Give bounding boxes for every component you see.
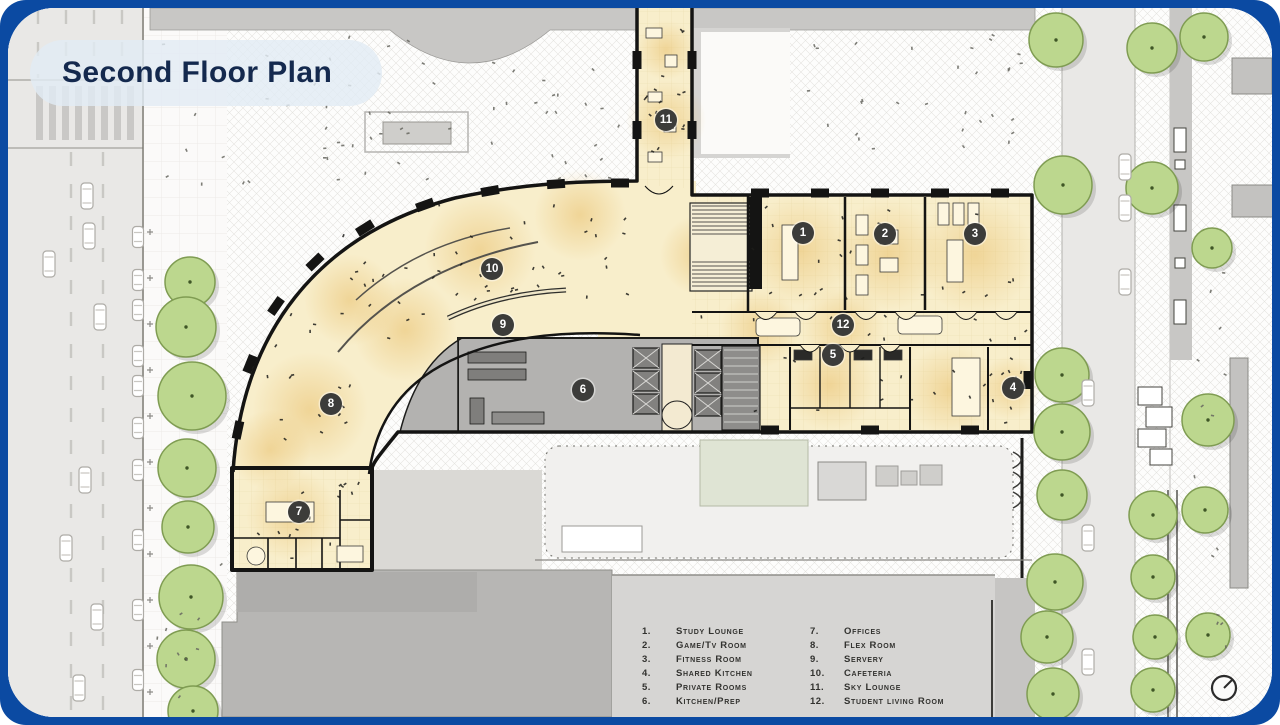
plan-canvas: Second Floor Plan 1 2 3 4 5 6 7 8 9 10 1… — [8, 8, 1272, 717]
site-plan — [8, 8, 1272, 717]
room-marker-10: 10 — [481, 258, 503, 280]
floor-plan-page: Second Floor Plan 1 2 3 4 5 6 7 8 9 10 1… — [0, 0, 1280, 725]
legend-item: 8.Flex Room — [810, 640, 1014, 652]
legend-item: 10.Cafeteria — [810, 668, 1014, 680]
room-marker-4: 4 — [1002, 377, 1024, 399]
page-title: Second Floor Plan — [62, 56, 332, 90]
room-marker-1: 1 — [792, 222, 814, 244]
legend-item-label: Sky Lounge — [844, 682, 1014, 694]
room-marker-6: 6 — [572, 379, 594, 401]
legend-item-label: Flex Room — [844, 640, 1014, 652]
legend-item-label: Servery — [844, 654, 1014, 666]
legend-item-label: Private Rooms — [676, 682, 800, 694]
legend-item-number: 1. — [642, 626, 676, 638]
room-marker-12: 12 — [832, 314, 854, 336]
legend-item: 4.Shared Kitchen — [642, 668, 800, 680]
legend-item: 1.Study Lounge — [642, 626, 800, 638]
legend: 1.Study Lounge 2.Game/Tv Room 3.Fitness … — [642, 626, 1014, 708]
legend-item: 9.Servery — [810, 654, 1014, 666]
legend-item-label: Study Lounge — [676, 626, 800, 638]
room-marker-9: 9 — [492, 314, 514, 336]
legend-item: 12.Student living Room — [810, 696, 1014, 708]
legend-item-number: 8. — [810, 640, 844, 652]
plan-title-pill: Second Floor Plan — [30, 40, 382, 106]
legend-item-number: 2. — [642, 640, 676, 652]
legend-item-number: 10. — [810, 668, 844, 680]
legend-item-number: 7. — [810, 626, 844, 638]
legend-item-label: Fitness Room — [676, 654, 800, 666]
room-marker-11: 11 — [655, 109, 677, 131]
legend-item-number: 12. — [810, 696, 844, 708]
legend-item-number: 3. — [642, 654, 676, 666]
legend-item-label: Shared Kitchen — [676, 668, 800, 680]
legend-item-number: 6. — [642, 696, 676, 708]
legend-item: 2.Game/Tv Room — [642, 640, 800, 652]
legend-item-label: Offices — [844, 626, 1014, 638]
room-marker-5: 5 — [822, 344, 844, 366]
legend-item: 3.Fitness Room — [642, 654, 800, 666]
legend-column-1: 1.Study Lounge 2.Game/Tv Room 3.Fitness … — [642, 626, 800, 708]
legend-item-label: Student living Room — [844, 696, 1014, 708]
legend-column-2: 7.Offices 8.Flex Room 9.Servery 10.Cafet… — [810, 626, 1014, 708]
room-marker-7: 7 — [288, 501, 310, 523]
legend-item: 7.Offices — [810, 626, 1014, 638]
legend-item: 11.Sky Lounge — [810, 682, 1014, 694]
room-marker-8: 8 — [320, 393, 342, 415]
legend-item-number: 5. — [642, 682, 676, 694]
room-marker-3: 3 — [964, 223, 986, 245]
legend-item-number: 9. — [810, 654, 844, 666]
north-compass-icon — [1212, 676, 1236, 700]
legend-item: 5.Private Rooms — [642, 682, 800, 694]
legend-item-label: Kitchen/Prep — [676, 696, 800, 708]
legend-item-label: Cafeteria — [844, 668, 1014, 680]
main-stair — [690, 197, 762, 291]
legend-item-number: 11. — [810, 682, 844, 694]
room-marker-2: 2 — [874, 223, 896, 245]
legend-item-number: 4. — [642, 668, 676, 680]
legend-item: 6.Kitchen/Prep — [642, 696, 800, 708]
legend-item-label: Game/Tv Room — [676, 640, 800, 652]
